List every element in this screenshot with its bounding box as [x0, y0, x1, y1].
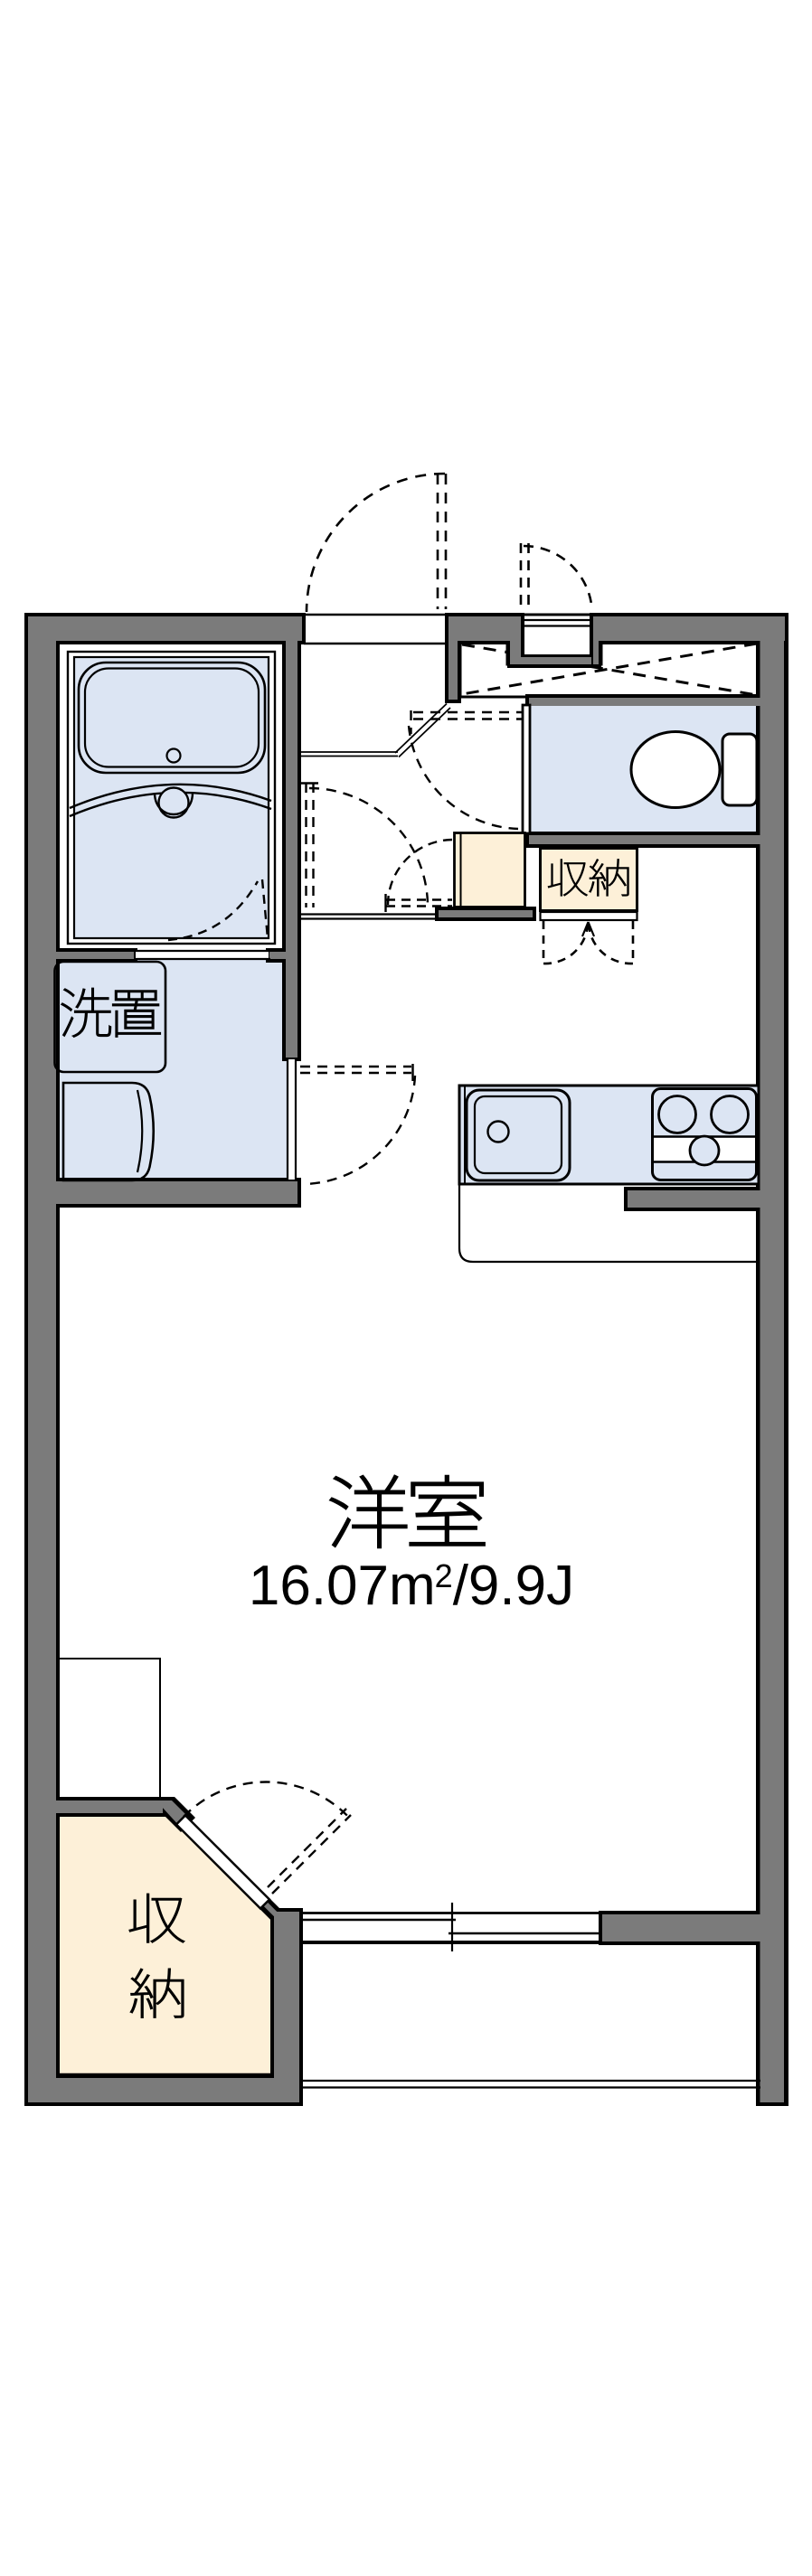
svg-text:16.07m2/9.9J: 16.07m2/9.9J — [249, 1555, 574, 1617]
